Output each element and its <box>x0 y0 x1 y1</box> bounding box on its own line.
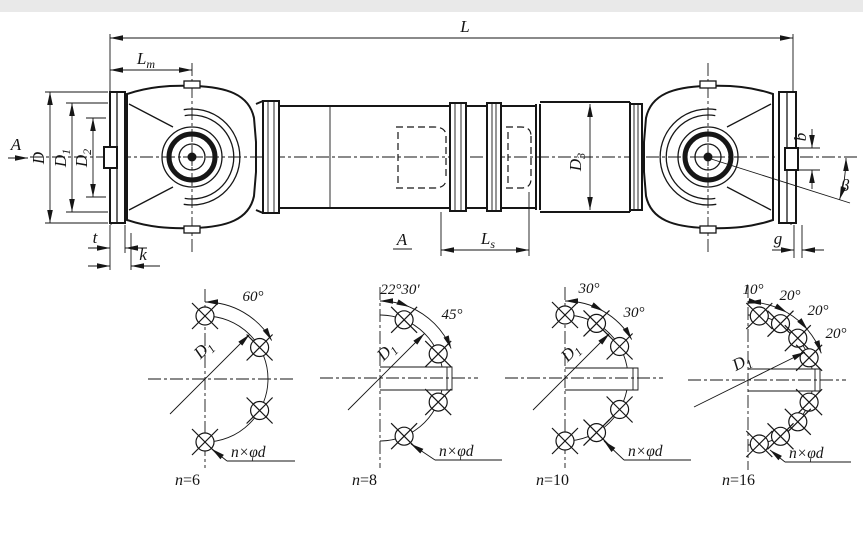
centerlines <box>30 63 858 252</box>
main-shaft-view: L Lm D D1 D2 D3 Ls t k b β g A A <box>8 17 858 270</box>
dim-label-D1: D1 <box>51 149 73 168</box>
holes-note: n×φd <box>789 445 824 462</box>
angle-label: 22°30′ <box>380 282 420 298</box>
angle-label: 30° <box>623 305 645 321</box>
flange-view-n10: 30° 30° D1 n×φd n=10 <box>505 281 691 489</box>
holes-note: n×φd <box>231 444 266 461</box>
flange-bolt <box>785 148 798 170</box>
angle-label: 20° <box>780 288 801 304</box>
section-arrow-label: A <box>10 135 22 154</box>
right-flange <box>779 92 798 223</box>
caption-n10: n=10 <box>536 472 569 489</box>
bolt-circle-label: D1 <box>372 338 401 367</box>
dim-label-Lm: Lm <box>136 49 155 71</box>
caption-n8: n=8 <box>352 472 377 489</box>
bolt-hole <box>607 397 633 423</box>
drawing-page: L Lm D D1 D2 D3 Ls t k b β g A A 60° D <box>0 0 863 539</box>
left-flange <box>104 92 125 223</box>
bolt-hole <box>746 303 772 329</box>
bolt-hole <box>584 310 610 336</box>
flange-view-n8: 22°30′ 45° D1 n×φd n=8 <box>320 282 502 489</box>
bolt-circle-label: D1 <box>556 339 585 368</box>
dim-label-beta: β <box>840 176 850 195</box>
section-view-label: A <box>396 230 408 249</box>
bolt-hole <box>192 303 218 329</box>
dim-label-D: D <box>29 151 48 165</box>
angle-label: 60° <box>243 289 264 305</box>
bolt-hole <box>584 420 610 446</box>
angle-label: 10° <box>743 282 764 298</box>
dim-label-g: g <box>774 229 783 248</box>
angle-label: 20° <box>826 326 847 342</box>
bolt-hole <box>607 334 633 360</box>
bolt-hole <box>785 409 811 435</box>
flange-bolt <box>104 147 117 168</box>
flange-view-n6: 60° D1 n×φd n=6 <box>148 289 295 489</box>
dim-label-D2: D2 <box>72 149 94 168</box>
angle-label: 45° <box>442 307 463 323</box>
bolt-hole <box>552 302 578 328</box>
bolt-hole <box>425 389 451 415</box>
key-slot <box>380 367 452 390</box>
flange-view-n16: 10° 20° 20° 20° D1 n×φd n=16 <box>688 282 851 489</box>
dim-label-k: k <box>139 245 147 264</box>
key-slot <box>565 368 638 390</box>
dim-label-Ls: Ls <box>480 229 495 251</box>
dim-label-b: b <box>791 133 810 142</box>
angle-label: 30° <box>578 281 600 297</box>
cardan-shaft-technical-drawing: L Lm D D1 D2 D3 Ls t k b β g A A 60° D <box>0 0 863 539</box>
sleeve-band <box>487 103 501 211</box>
sleeve-band <box>450 103 466 211</box>
bolt-hole <box>796 345 822 371</box>
bolt-hole <box>247 398 273 424</box>
angle-label: 20° <box>808 303 829 319</box>
bolt-hole <box>746 431 772 457</box>
dimension-lines <box>8 34 850 270</box>
holes-note: n×φd <box>628 443 663 460</box>
bolt-hole <box>247 335 273 361</box>
dim-label-L: L <box>459 17 469 36</box>
bolt-hole <box>425 341 451 367</box>
dim-label-t: t <box>93 228 99 247</box>
holes-note: n×φd <box>439 443 474 460</box>
dim-label-D3: D3 <box>566 153 588 172</box>
bolt-hole <box>552 428 578 454</box>
caption-n6: n=6 <box>175 472 200 489</box>
bolt-circle-label: D1 <box>189 336 218 365</box>
caption-n16: n=16 <box>722 472 755 489</box>
bolt-hole <box>391 307 417 333</box>
